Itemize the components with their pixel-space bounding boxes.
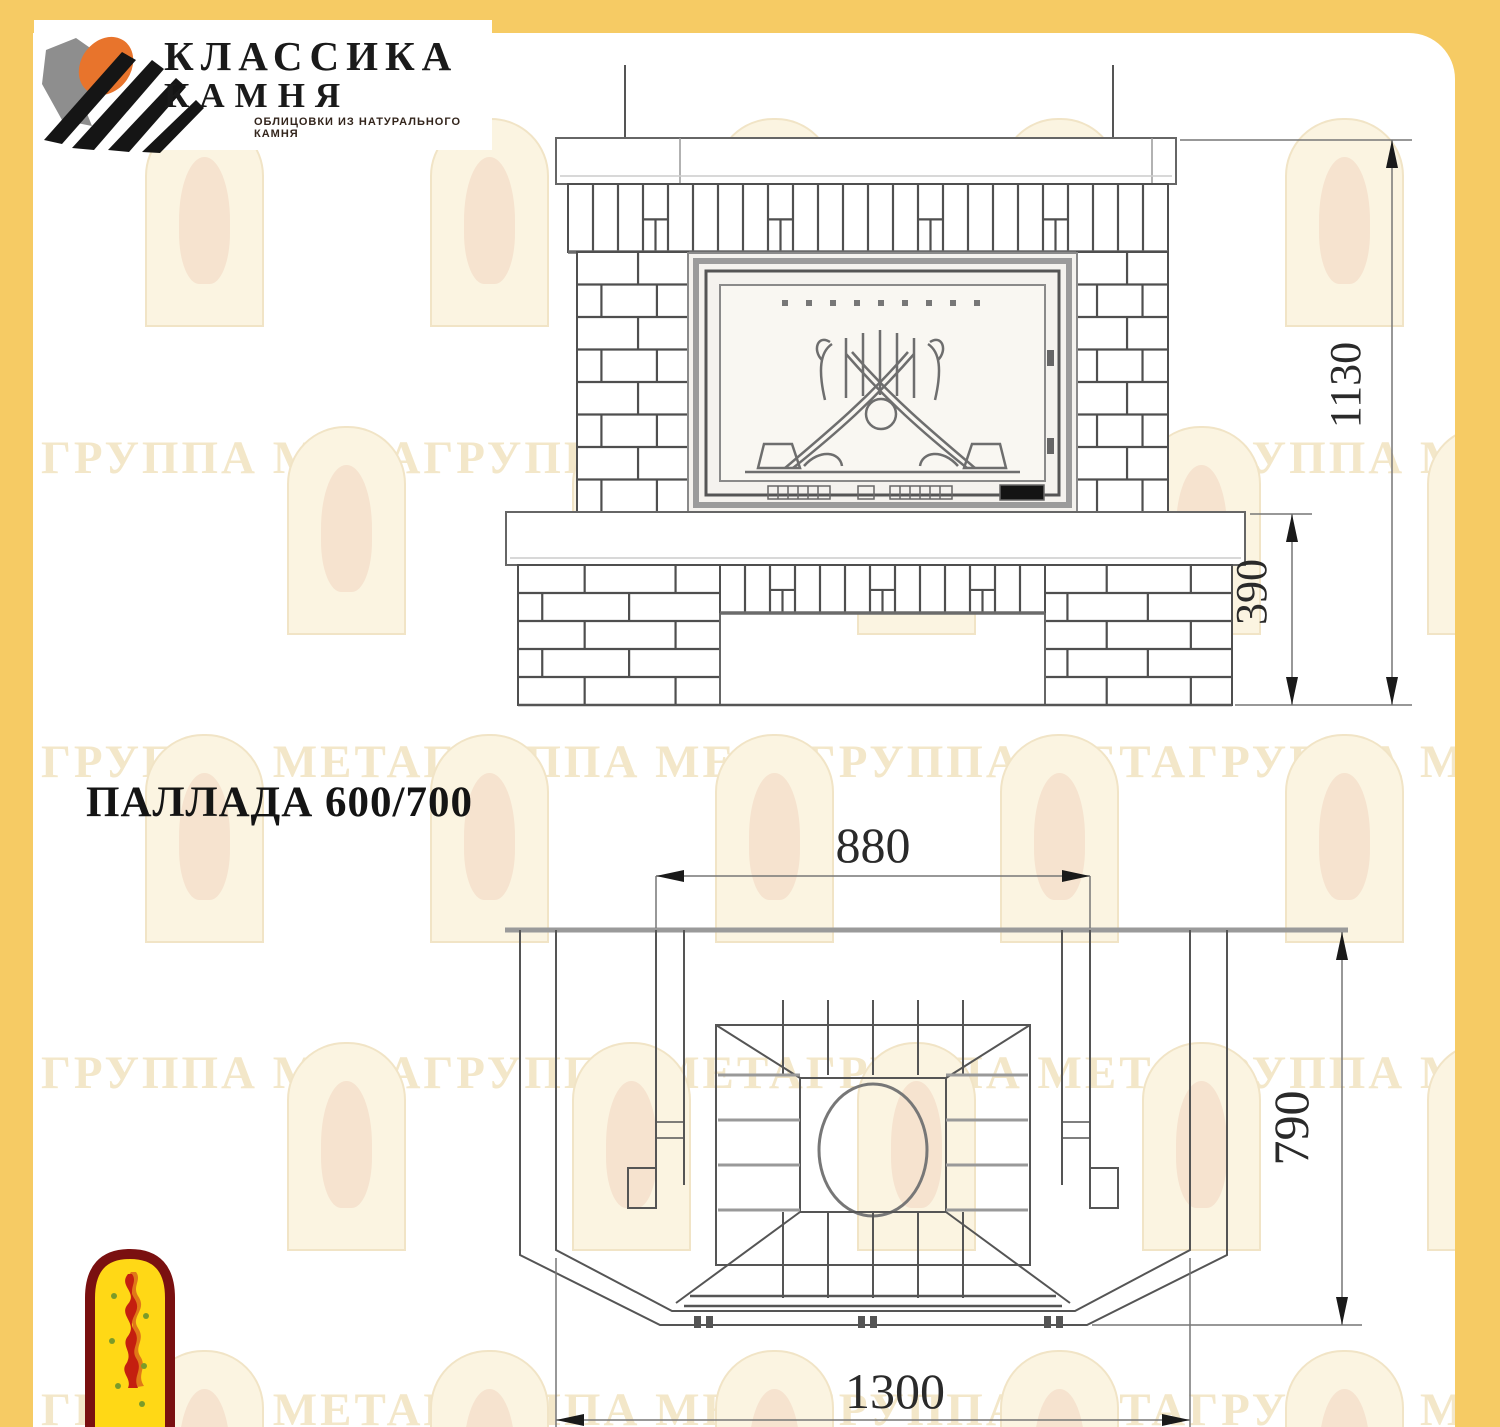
brick-pilaster-left — [577, 252, 688, 512]
flue-lines — [625, 65, 1113, 138]
brick-frieze-top — [568, 184, 1168, 252]
dimension-arrows — [556, 870, 1348, 1426]
dim-width-1300: 1300 — [845, 1363, 945, 1419]
brick-pilaster-right — [1077, 252, 1168, 512]
brick-base-right — [1045, 565, 1232, 705]
brick-frieze-base — [720, 565, 1045, 613]
dim-opening-880: 880 — [836, 817, 911, 873]
dim-depth-790: 790 — [1263, 1091, 1319, 1166]
door-handle — [1000, 485, 1044, 500]
logo-name-line2: КАМНЯ — [164, 76, 350, 116]
fireplace-technical-drawing: 1130 390 — [0, 0, 1500, 1427]
front-view-drawing — [506, 65, 1245, 705]
page: ГРУППА МЕТАГРУППА МЕТАГРУППА МЕТАГРУППА … — [0, 0, 1500, 1427]
brick-base-left — [518, 565, 720, 705]
vent-dots — [782, 300, 980, 306]
flue-outlet — [819, 1084, 927, 1216]
plan-view-drawing — [505, 930, 1348, 1328]
dim-hearth-390: 390 — [1227, 559, 1276, 625]
metagroup-emblem-icon — [84, 1246, 176, 1427]
side-ribs — [718, 1075, 1028, 1210]
insert-feet — [694, 1316, 1063, 1328]
firebox-insert-plan — [676, 1000, 1070, 1328]
company-logo: КЛАССИКА КАМНЯ ОБЛИЦОВКИ ИЗ НАТУРАЛЬНОГО… — [34, 20, 492, 150]
firebox — [688, 253, 1077, 513]
logo-name-line1: КЛАССИКА — [164, 32, 458, 80]
page-title: ПАЛЛАДА 600/700 — [86, 778, 473, 827]
logo-tagline: ОБЛИЦОВКИ ИЗ НАТУРАЛЬНОГО КАМНЯ — [254, 116, 492, 140]
dim-height-1130: 1130 — [1321, 342, 1370, 428]
